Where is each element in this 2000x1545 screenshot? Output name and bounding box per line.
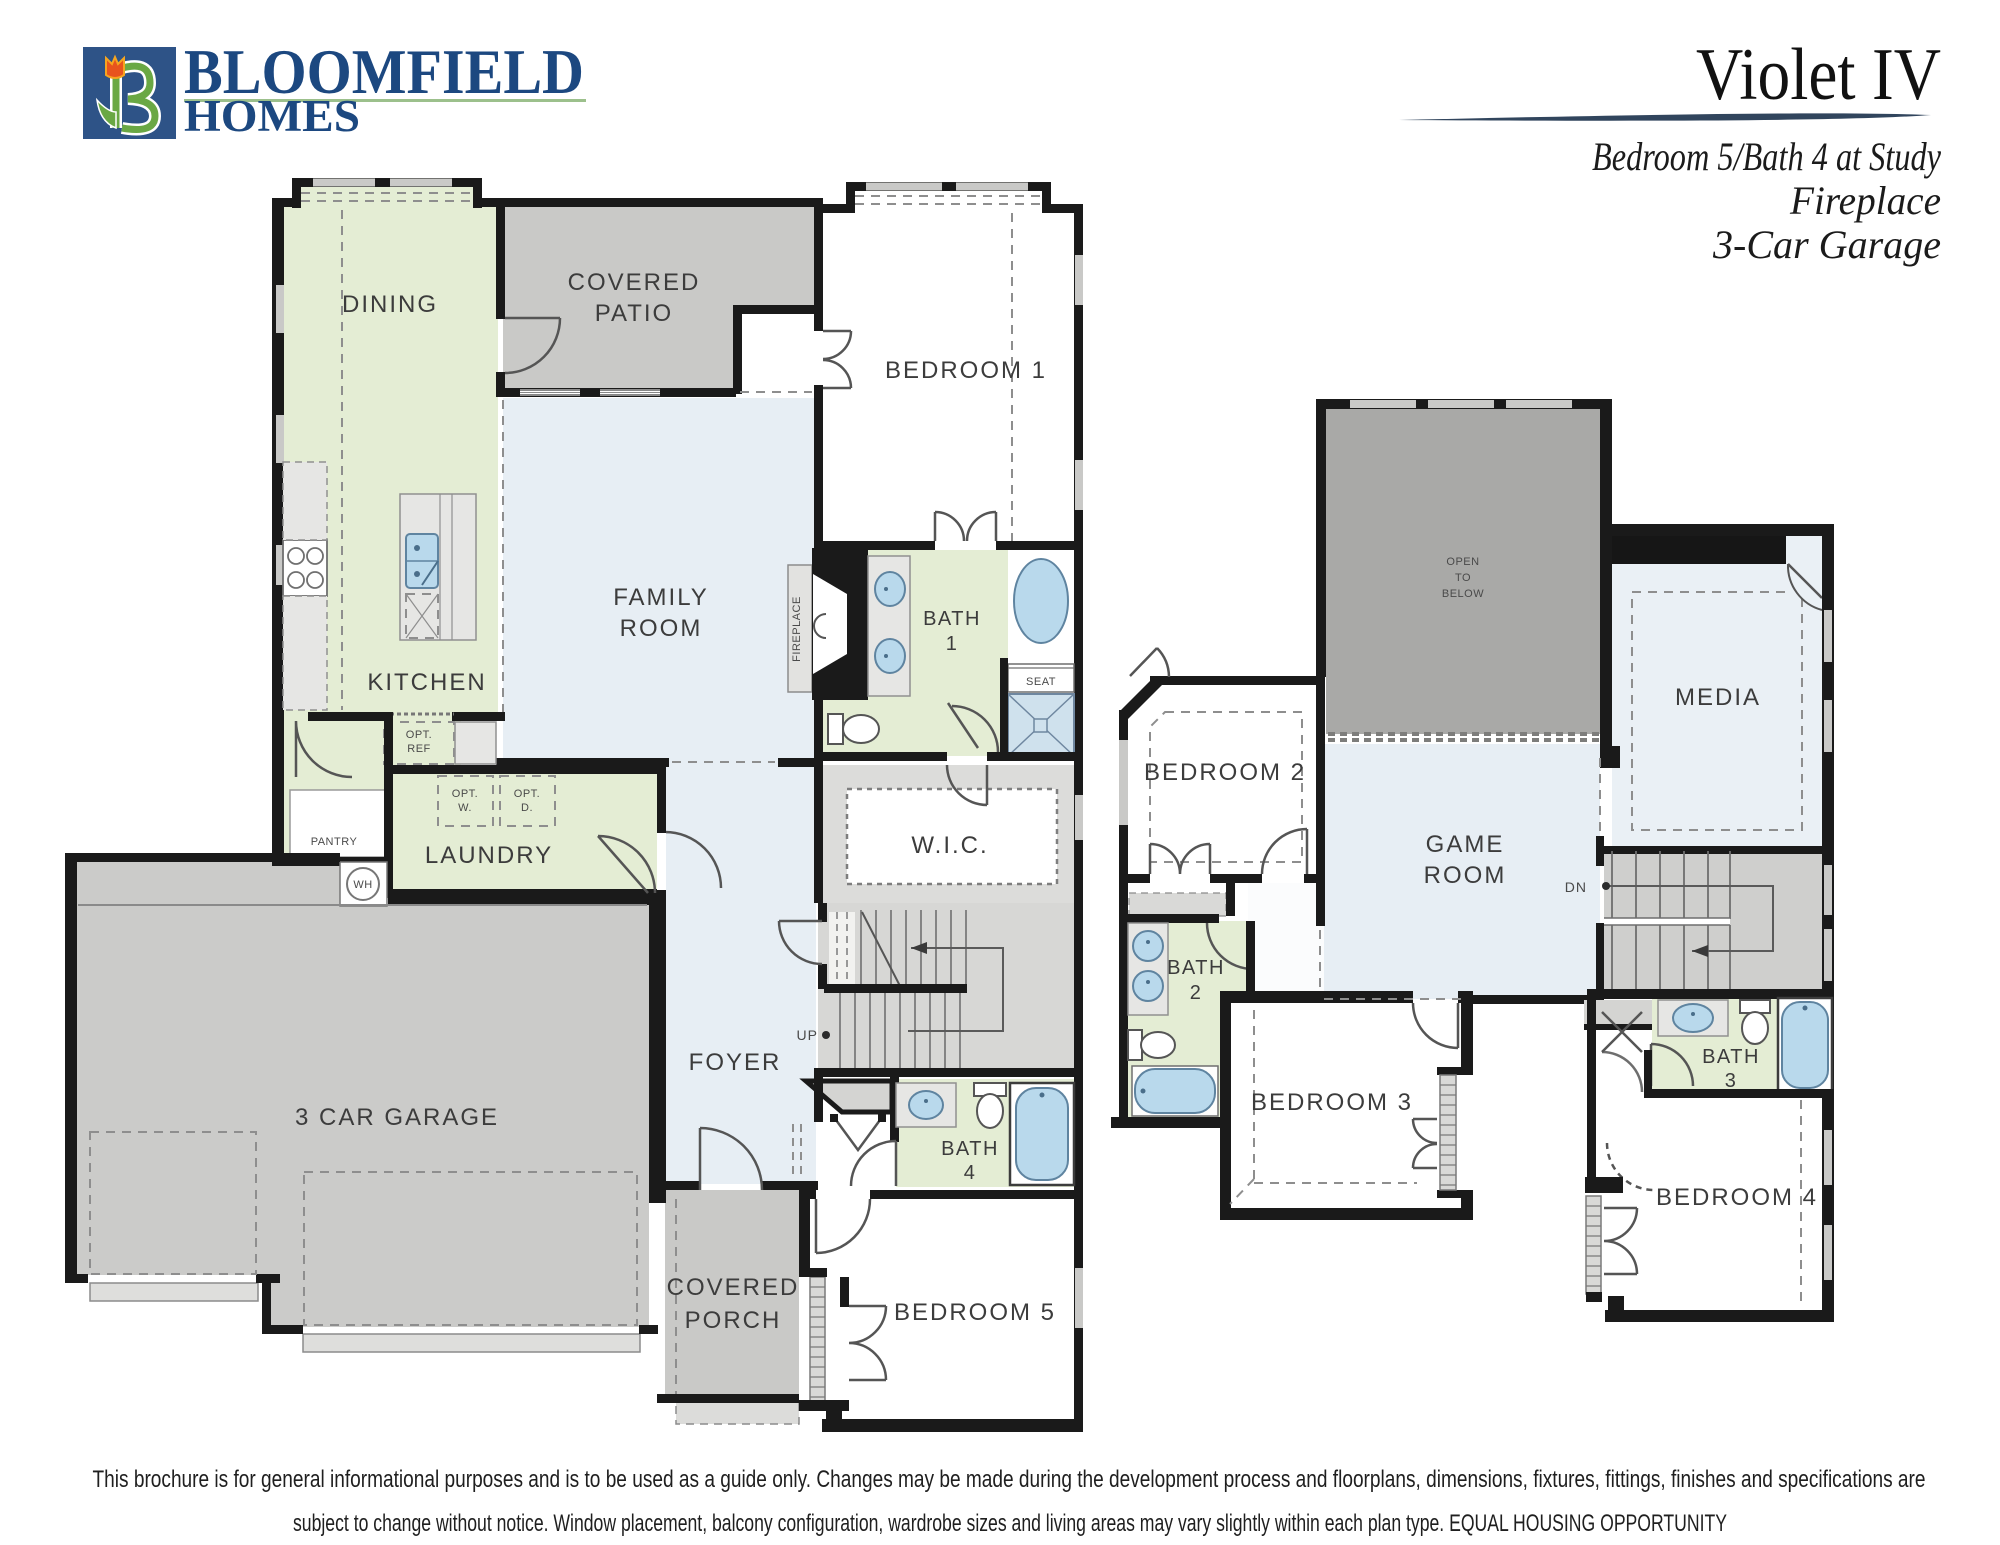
svg-text:Fireplace: Fireplace: [1789, 178, 1941, 223]
svg-text:2: 2: [1190, 982, 1203, 1004]
svg-text:FIREPLACE: FIREPLACE: [791, 596, 803, 662]
svg-text:1: 1: [946, 633, 959, 655]
svg-text:4: 4: [964, 1162, 977, 1184]
svg-text:ROOM: ROOM: [1424, 862, 1507, 889]
svg-text:REF: REF: [407, 743, 431, 755]
svg-text:subject to change without noti: subject to change without notice. Window…: [293, 1510, 1727, 1537]
svg-text:BATH: BATH: [1702, 1046, 1760, 1068]
svg-text:This brochure is for general i: This brochure is for general information…: [93, 1466, 1926, 1493]
svg-text:SEAT: SEAT: [1026, 676, 1056, 688]
svg-text:UP: UP: [797, 1027, 818, 1043]
svg-text:BATH: BATH: [923, 608, 981, 630]
svg-text:BEDROOM 5: BEDROOM 5: [894, 1299, 1056, 1326]
svg-text:D.: D.: [521, 802, 533, 814]
svg-text:FOYER: FOYER: [689, 1049, 782, 1076]
svg-text:ROOM: ROOM: [620, 615, 703, 642]
svg-text:OPT.: OPT.: [452, 788, 478, 800]
svg-text:FAMILY: FAMILY: [613, 584, 709, 611]
svg-text:3 CAR GARAGE: 3 CAR GARAGE: [295, 1104, 499, 1131]
svg-text:WH: WH: [353, 879, 372, 891]
svg-text:Bedroom 5/Bath 4 at Study: Bedroom 5/Bath 4 at Study: [1592, 134, 1941, 179]
svg-text:W.I.C.: W.I.C.: [911, 832, 988, 859]
svg-text:Violet IV: Violet IV: [1696, 34, 1941, 116]
svg-text:BATH: BATH: [1167, 957, 1225, 979]
svg-text:DINING: DINING: [342, 291, 438, 318]
svg-text:BEDROOM 4: BEDROOM 4: [1656, 1184, 1818, 1211]
svg-text:3-Car Garage: 3-Car Garage: [1712, 222, 1941, 267]
svg-text:BATH: BATH: [941, 1138, 999, 1160]
svg-text:MEDIA: MEDIA: [1675, 684, 1761, 711]
svg-text:DN: DN: [1565, 879, 1587, 895]
svg-text:PORCH: PORCH: [685, 1307, 782, 1334]
svg-text:KITCHEN: KITCHEN: [367, 669, 486, 696]
svg-text:OPEN: OPEN: [1446, 556, 1479, 568]
svg-text:PANTRY: PANTRY: [311, 836, 358, 848]
svg-text:LAUNDRY: LAUNDRY: [425, 842, 553, 869]
svg-text:BEDROOM 2: BEDROOM 2: [1144, 759, 1306, 786]
svg-text:PATIO: PATIO: [595, 300, 673, 327]
svg-text:W.: W.: [458, 802, 472, 814]
svg-text:HOMES: HOMES: [184, 91, 360, 141]
svg-text:COVERED: COVERED: [667, 1274, 800, 1301]
svg-text:GAME: GAME: [1426, 831, 1505, 858]
svg-text:BEDROOM 1: BEDROOM 1: [885, 357, 1047, 384]
svg-text:OPT.: OPT.: [514, 788, 540, 800]
svg-text:BELOW: BELOW: [1442, 588, 1484, 600]
svg-text:TO: TO: [1455, 572, 1471, 584]
svg-text:3: 3: [1725, 1070, 1738, 1092]
svg-text:BEDROOM 3: BEDROOM 3: [1251, 1089, 1413, 1116]
svg-text:COVERED: COVERED: [568, 269, 701, 296]
svg-text:OPT.: OPT.: [406, 729, 432, 741]
